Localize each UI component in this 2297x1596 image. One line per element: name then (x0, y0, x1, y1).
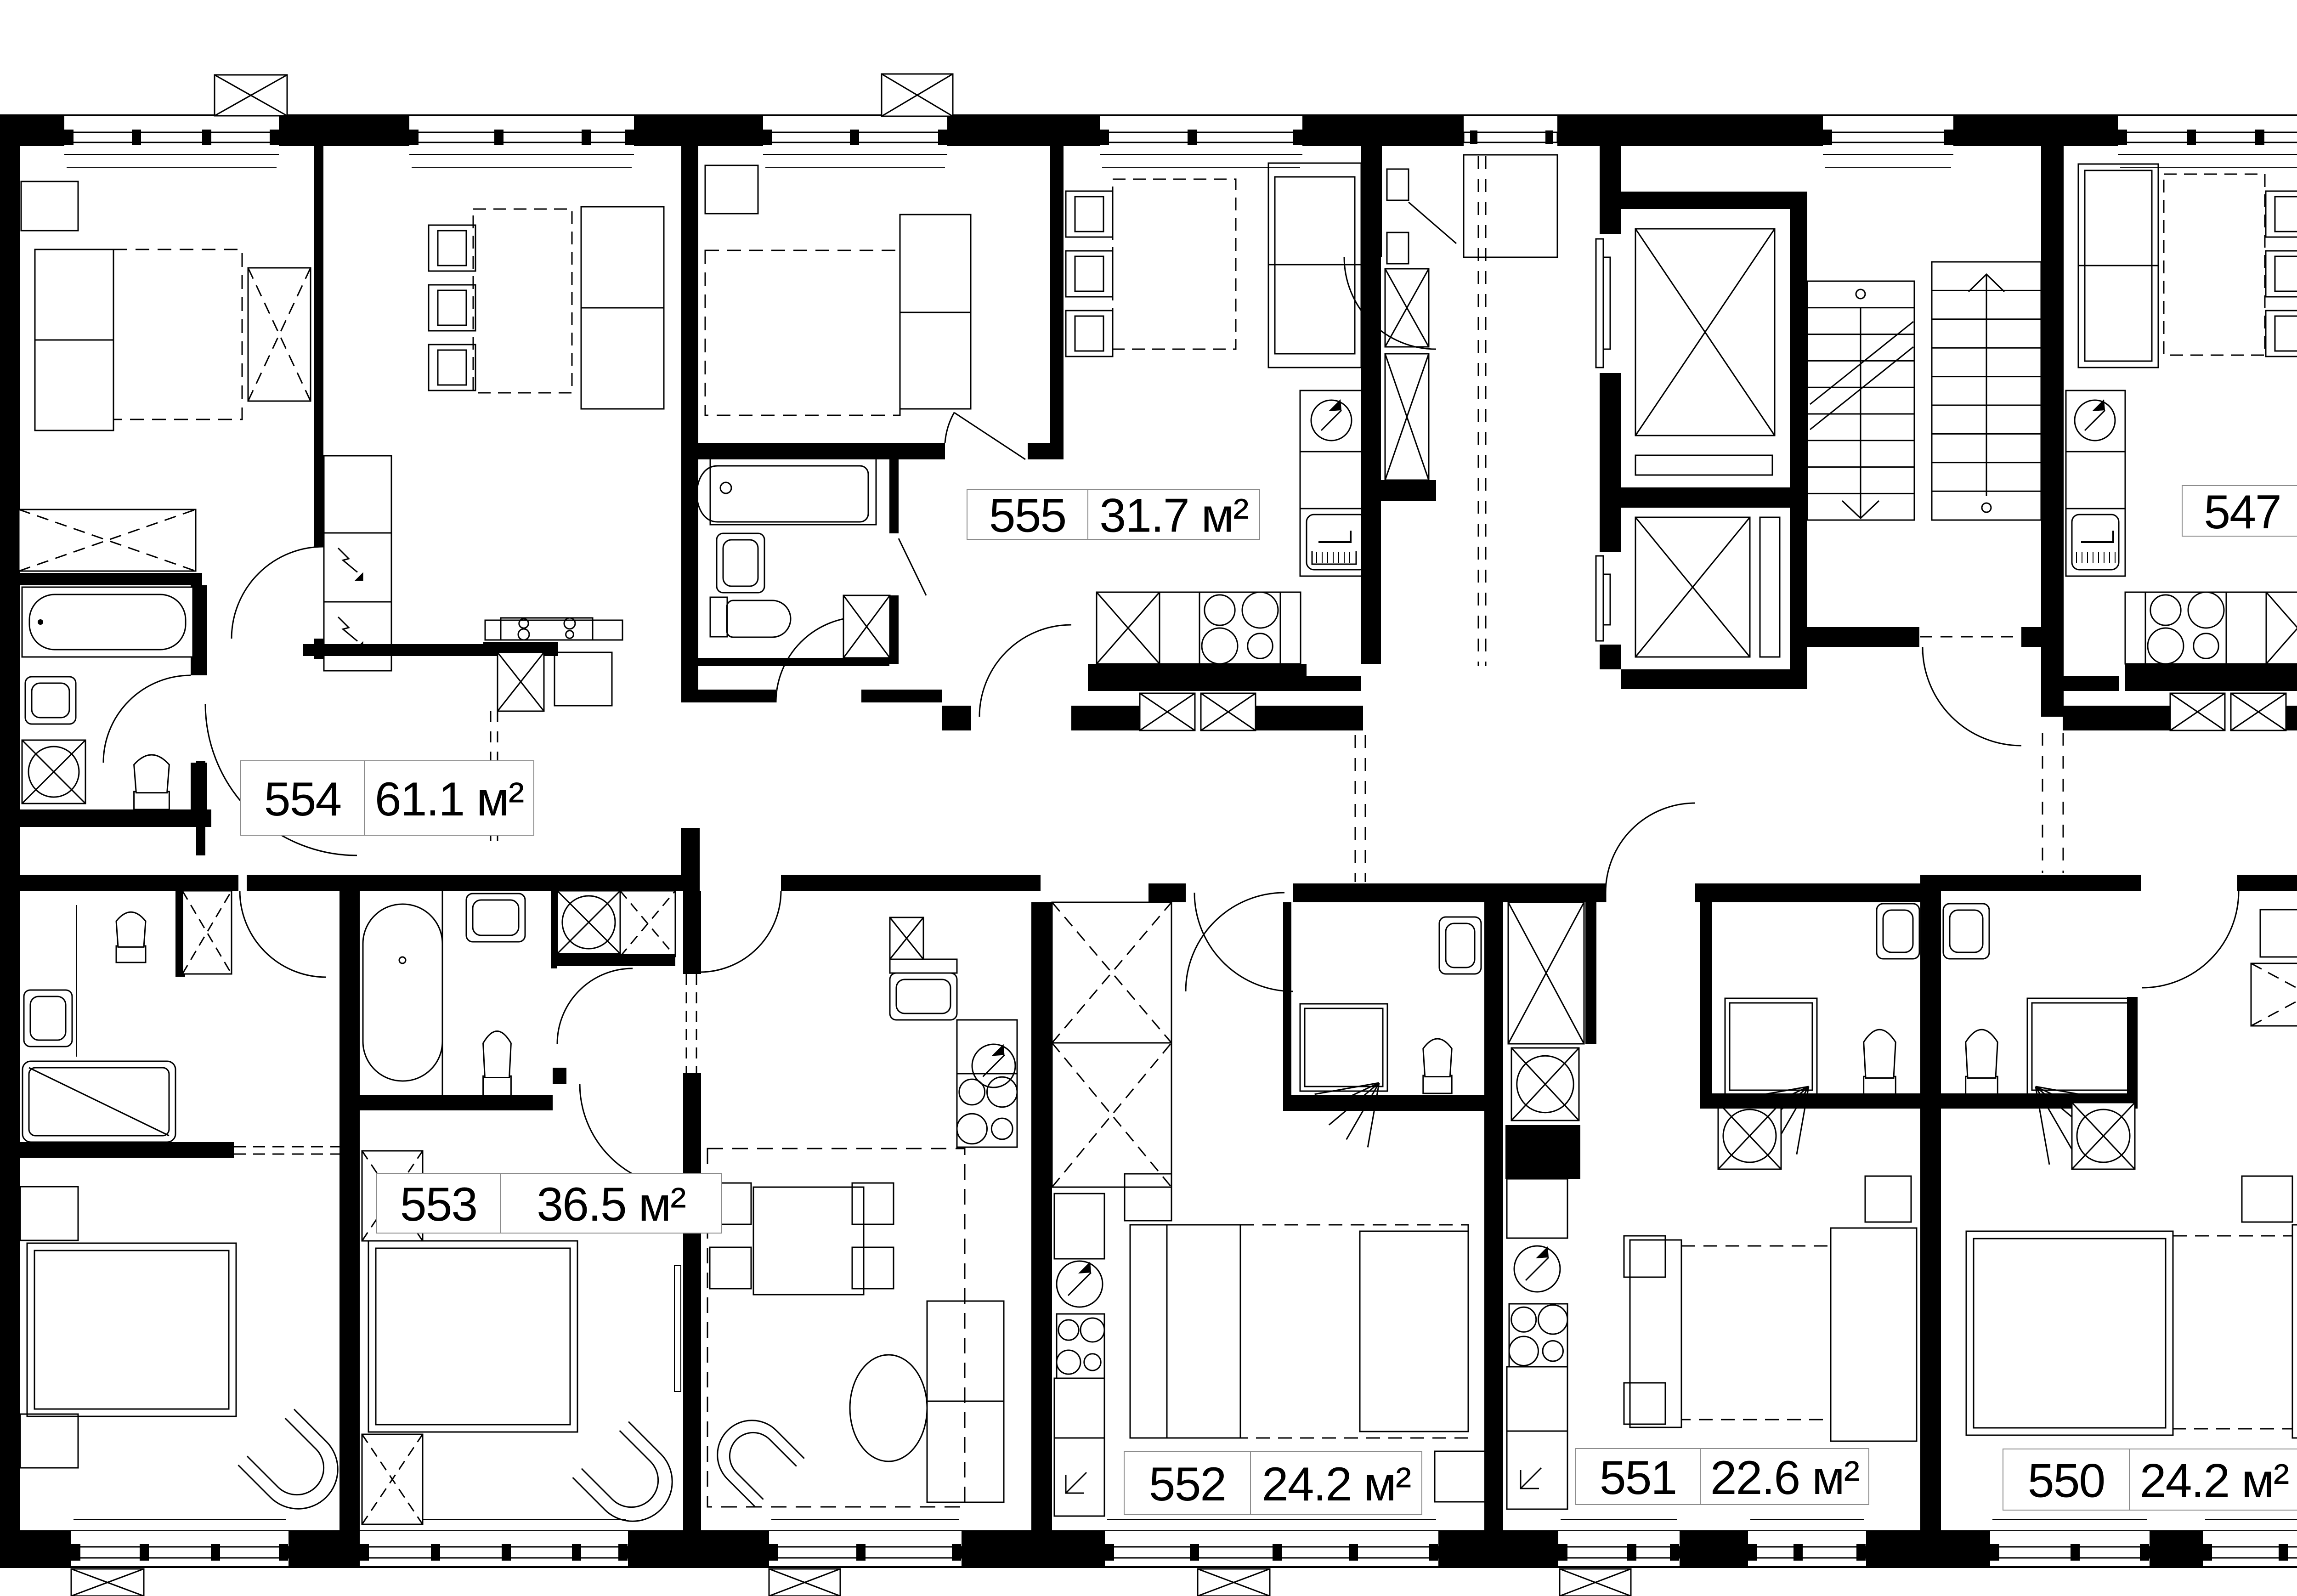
svg-text:31.7 м²: 31.7 м² (1099, 489, 1248, 543)
svg-text:61.1 м²: 61.1 м² (375, 773, 524, 826)
svg-text:554: 554 (264, 773, 341, 826)
svg-text:36.5 м²: 36.5 м² (537, 1178, 685, 1231)
svg-text:547: 547 (2204, 486, 2281, 539)
svg-text:551: 551 (1600, 1451, 1677, 1505)
svg-text:24.2 м²: 24.2 м² (2140, 1455, 2289, 1508)
svg-text:555: 555 (989, 489, 1066, 543)
svg-text:550: 550 (2028, 1455, 2105, 1508)
svg-text:552: 552 (1149, 1458, 1226, 1511)
svg-text:22.6 м²: 22.6 м² (1710, 1451, 1859, 1505)
svg-text:24.2 м²: 24.2 м² (1262, 1458, 1411, 1511)
svg-text:553: 553 (400, 1178, 477, 1231)
